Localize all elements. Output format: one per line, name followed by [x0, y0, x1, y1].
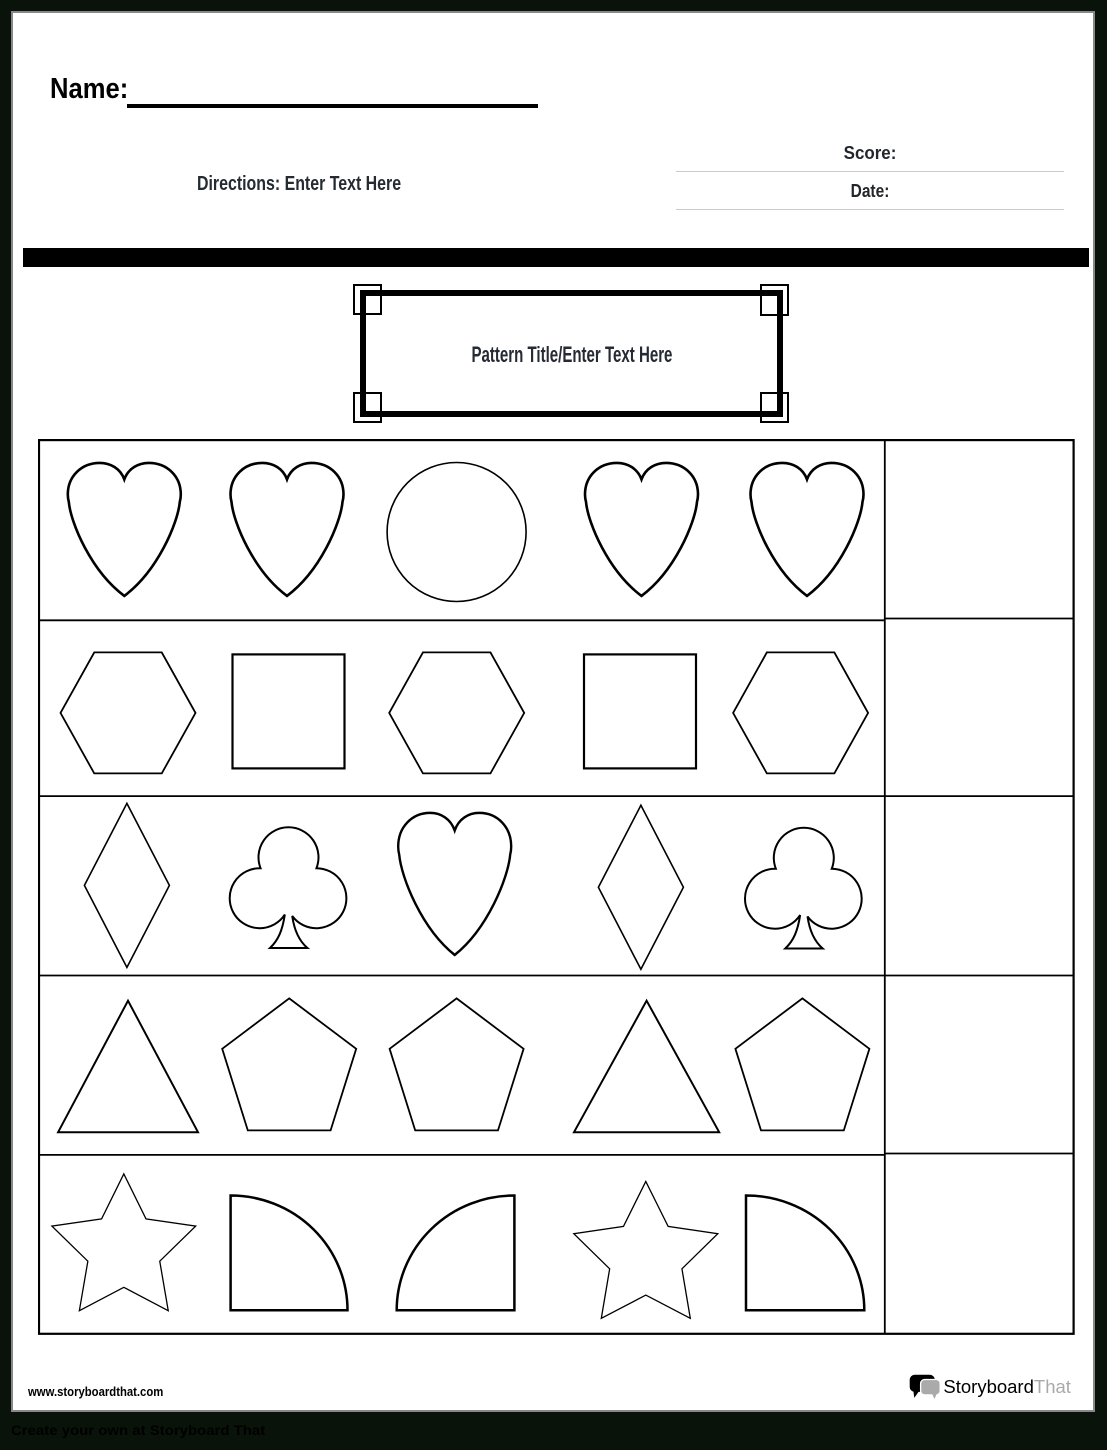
svg-text:StoryboardThat: StoryboardThat [943, 1376, 1071, 1397]
